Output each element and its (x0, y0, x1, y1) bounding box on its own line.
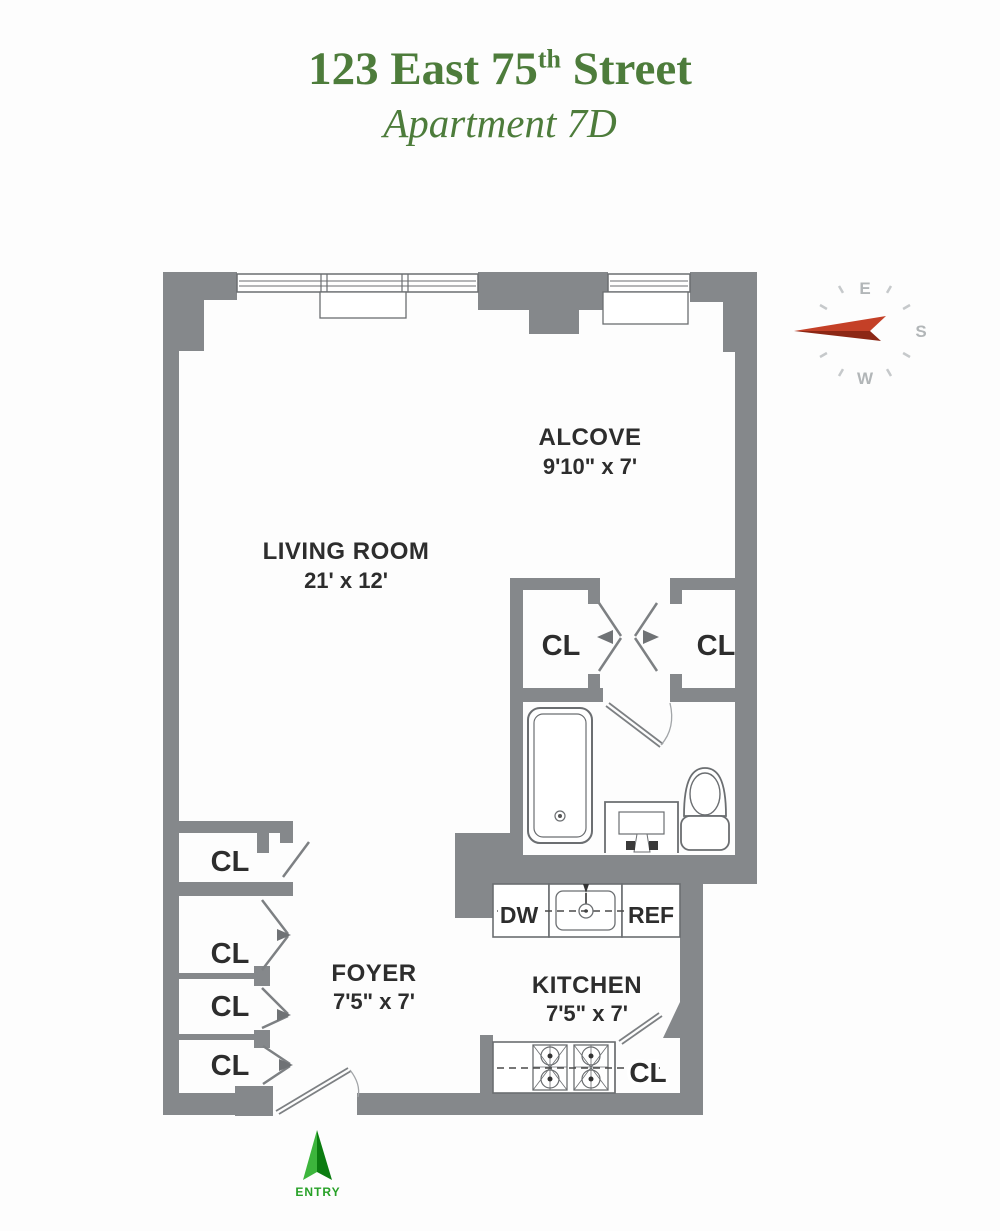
page-title: 123 East 75th Street Apartment 7D (0, 44, 1000, 147)
faucet-handle-right (649, 841, 658, 850)
closet-label: CL (211, 991, 250, 1023)
refrigerator-label: REF (628, 902, 674, 928)
alcove-radiator-box (603, 292, 688, 324)
floor-plan-svg: ENTRY E S W LIVING ROOM (0, 0, 1000, 1231)
compass-south-label: S (915, 322, 926, 341)
living-room-window (237, 274, 478, 292)
address-title-superscript: th (538, 44, 561, 73)
closet-label: CL (211, 938, 250, 970)
foyer-closet1-door (283, 842, 309, 877)
compass: E S W (794, 279, 927, 388)
entry-arrow-icon (303, 1130, 332, 1180)
dishwasher-label: DW (500, 902, 539, 928)
foyer-closet3-bifold-door (262, 988, 288, 1028)
radiator-box (320, 292, 406, 318)
sink-vanity (605, 802, 678, 853)
toilet (681, 768, 729, 850)
compass-east-label: E (859, 279, 870, 298)
foyer-dims: 7'5" x 7' (333, 989, 415, 1014)
address-title-suffix: Street (561, 43, 692, 95)
entry-door (276, 1068, 359, 1114)
alcove-label: ALCOVE (538, 424, 641, 451)
apartment-subtitle: Apartment 7D (0, 100, 1000, 147)
closet-label: CL (697, 630, 736, 662)
alcove-window (608, 274, 690, 292)
foyer-label: FOYER (331, 960, 416, 987)
living-room-dims: 21' x 12' (304, 568, 388, 593)
address-title-text: 123 East 75 (308, 43, 538, 95)
bathroom-door (606, 703, 672, 747)
compass-west-label: W (857, 369, 874, 388)
closet-label: CL (542, 630, 581, 662)
entry-label: ENTRY (295, 1185, 340, 1199)
closet-label: CL (211, 1050, 250, 1082)
windows (237, 274, 690, 324)
address-title: 123 East 75th Street (0, 44, 1000, 96)
walls (163, 272, 757, 1116)
alcove-dims: 9'10" x 7' (543, 454, 637, 479)
closet-label: CL (211, 846, 250, 878)
entry: ENTRY (276, 1068, 359, 1199)
floor-plan-page: 123 East 75th Street Apartment 7D (0, 0, 1000, 1231)
living-room-label: LIVING ROOM (263, 538, 430, 565)
kitchen-label: KITCHEN (532, 972, 642, 999)
closet-label: CL (629, 1057, 666, 1088)
compass-needle-icon (794, 316, 886, 341)
bathtub (528, 708, 592, 843)
bathroom (528, 703, 729, 853)
faucet-handle-left (626, 841, 635, 850)
kitchen-dims: 7'5" x 7' (546, 1001, 628, 1026)
